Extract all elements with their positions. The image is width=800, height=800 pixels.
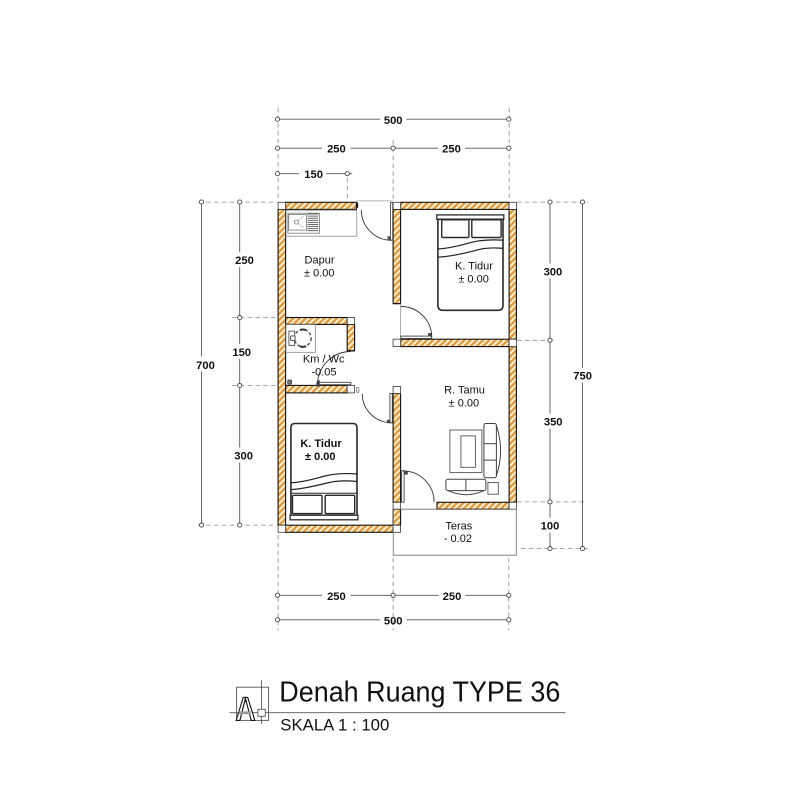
- svg-text:250: 250: [443, 591, 462, 603]
- svg-text:R. Tamu: R. Tamu: [444, 385, 485, 397]
- svg-text:Teras: Teras: [445, 521, 472, 533]
- svg-text:300: 300: [544, 267, 563, 279]
- svg-text:- 0.02: - 0.02: [444, 533, 472, 545]
- svg-text:Denah Ruang TYPE 36: Denah Ruang TYPE 36: [279, 677, 560, 709]
- svg-text:Dapur: Dapur: [305, 255, 335, 267]
- svg-text:250: 250: [235, 255, 254, 267]
- svg-text:± 0.00: ± 0.00: [305, 451, 336, 463]
- svg-text:± 0.00: ± 0.00: [458, 274, 489, 286]
- svg-text:500: 500: [384, 615, 403, 627]
- svg-text:Km / Wc: Km / Wc: [303, 354, 345, 366]
- svg-text:700: 700: [196, 360, 215, 372]
- svg-text:± 0.00: ± 0.00: [304, 268, 335, 280]
- svg-text:-0.05: -0.05: [311, 366, 336, 378]
- svg-text:500: 500: [384, 115, 403, 127]
- svg-text:100: 100: [541, 521, 560, 533]
- svg-text:K. Tidur: K. Tidur: [300, 438, 342, 450]
- svg-text:150: 150: [232, 347, 251, 359]
- svg-text:K. Tidur: K. Tidur: [455, 261, 493, 273]
- svg-text:300: 300: [234, 451, 253, 463]
- svg-text:250: 250: [327, 144, 346, 156]
- svg-text:250: 250: [442, 144, 461, 156]
- svg-text:350: 350: [544, 416, 563, 428]
- svg-text:± 0.00: ± 0.00: [449, 398, 480, 410]
- svg-text:750: 750: [573, 371, 592, 383]
- svg-text:250: 250: [327, 591, 346, 603]
- svg-text:SKALA 1 : 100: SKALA 1 : 100: [280, 717, 389, 735]
- svg-text:150: 150: [304, 169, 323, 181]
